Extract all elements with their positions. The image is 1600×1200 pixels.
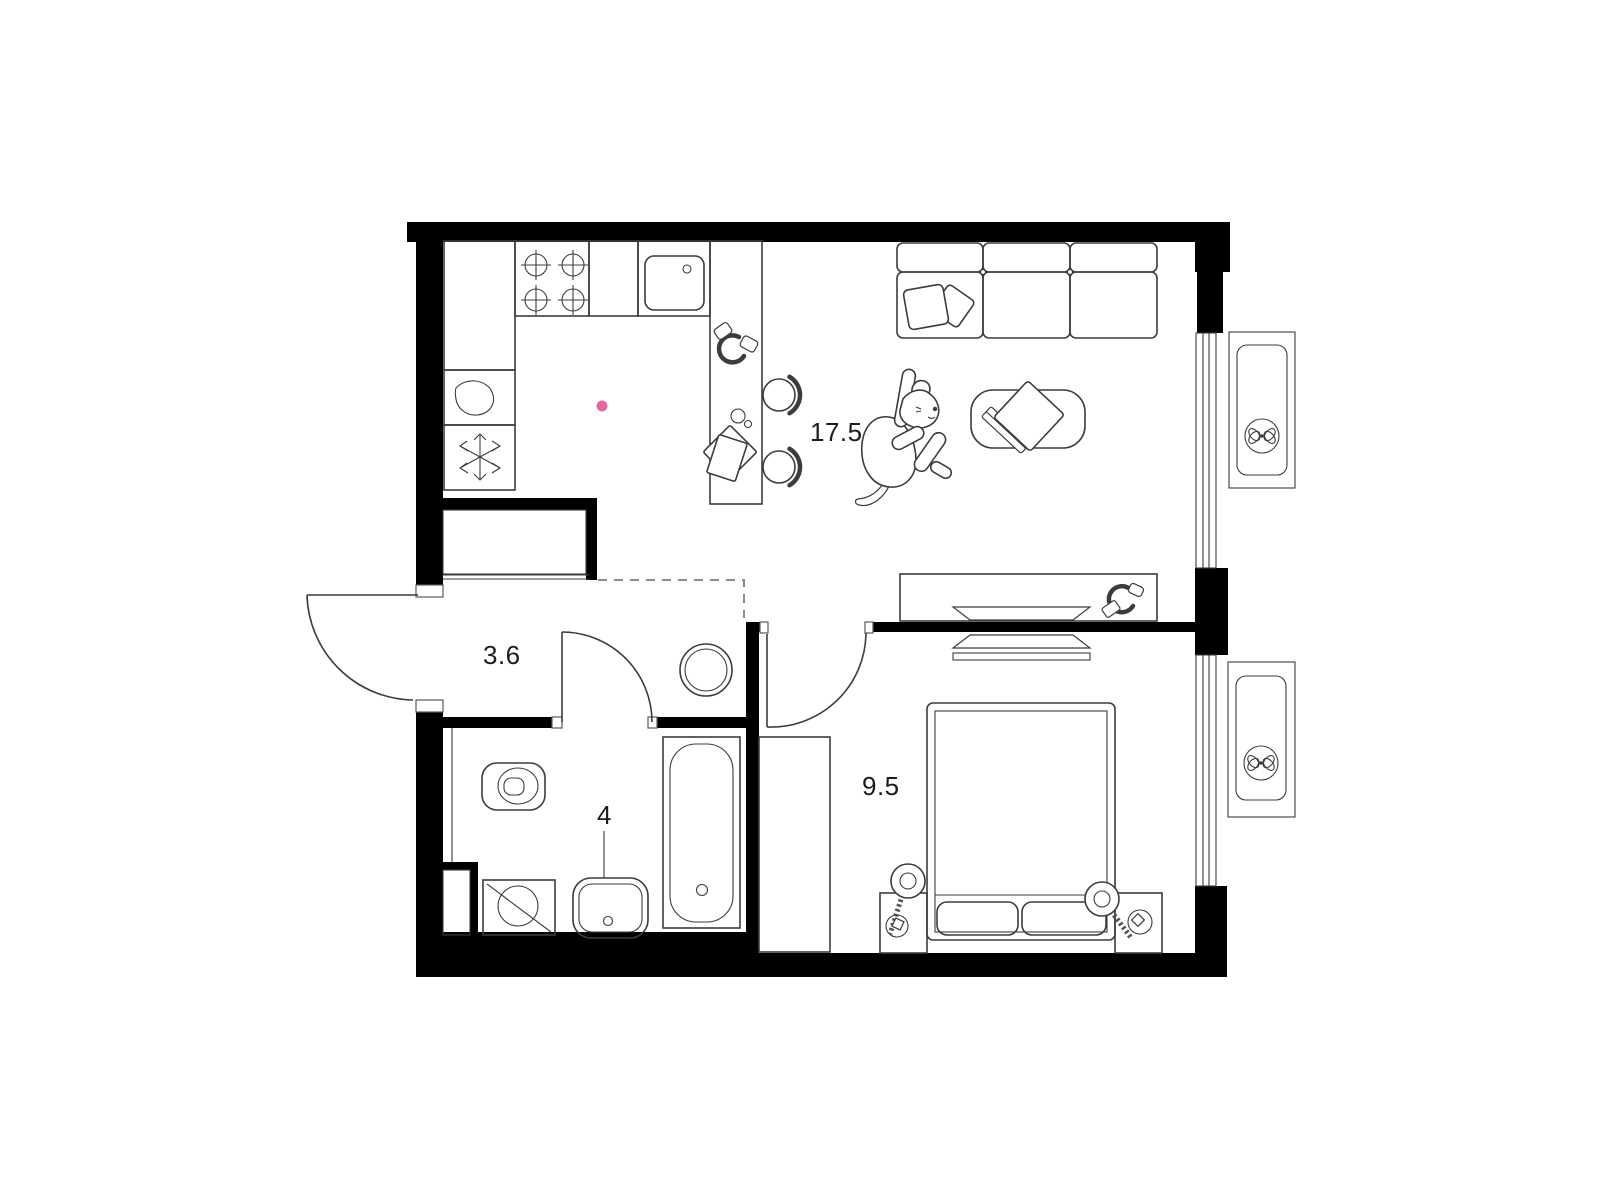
tv-icon	[953, 607, 1090, 620]
kitchen-group	[444, 241, 800, 504]
cutting-board-icon	[703, 425, 757, 482]
ac-vent-unit	[1228, 662, 1295, 817]
cup-icon	[731, 409, 752, 428]
floor-plan-svg: 17.5 3.6 4 9.5	[0, 0, 1600, 1200]
snowflake-icon	[460, 434, 500, 480]
wall-left-lower	[416, 712, 443, 977]
toilet-icon	[482, 763, 545, 810]
wall-shaft-right	[470, 870, 478, 935]
entry-door-swing-icon	[307, 595, 418, 700]
ac-vent-unit	[1229, 332, 1295, 488]
kitchen-sink-icon	[645, 256, 704, 310]
bathroom-door-swing-icon	[562, 632, 652, 722]
wall-hall-bedroom-divider	[746, 622, 759, 953]
window-icon	[1196, 333, 1216, 568]
utility-shaft	[443, 870, 470, 935]
bedroom-door-jamb-left	[760, 622, 768, 633]
tv-icon-bedroom	[953, 635, 1090, 660]
sink-counter-section	[638, 241, 710, 316]
wall-shaft-top	[442, 862, 478, 870]
living-room-group	[855, 243, 1157, 621]
counter-section	[589, 241, 638, 316]
room-label-hallway: 3.6	[483, 640, 521, 670]
room-label-bedroom: 9.5	[862, 771, 900, 801]
wall-living-bedroom-divider	[873, 622, 1197, 632]
wall-kitchen-closet-top	[420, 498, 597, 510]
pillow-icon	[937, 902, 1018, 935]
tv-shelf	[953, 653, 1090, 660]
bath-door-jamb-left	[552, 717, 562, 728]
smoke-detector-dot	[597, 401, 608, 412]
wall-top-right-step	[1195, 242, 1230, 272]
table-lamp-icon	[886, 864, 925, 937]
dog-illustration	[855, 368, 953, 505]
headphones-icon	[1101, 583, 1144, 619]
hall-closet	[443, 510, 586, 574]
headphones-icon	[713, 321, 759, 362]
pouf-icon	[680, 644, 732, 696]
bedroom-group	[759, 635, 1162, 953]
coffee-table-icon	[971, 381, 1085, 454]
water-drop-icon	[455, 381, 493, 415]
wall-left-upper	[416, 222, 443, 585]
books-icon	[981, 381, 1064, 454]
wardrobe-icon	[759, 737, 830, 952]
bar-stool-icon	[763, 449, 800, 485]
wall-bathroom-top-left	[443, 717, 552, 728]
wall-right-pier-1	[1197, 272, 1223, 333]
bathroom-sink-icon	[573, 831, 648, 938]
table-lamp-icon	[1085, 882, 1152, 939]
bedroom-door-swing-icon	[767, 633, 866, 727]
ventilation-fan-icon	[1245, 419, 1279, 453]
sofa-icon	[897, 243, 1157, 338]
bathtub-icon	[663, 737, 740, 928]
wall-right-pier-2	[1195, 568, 1228, 655]
window-icon	[1196, 655, 1216, 886]
bar-stool-icon	[763, 377, 800, 413]
kitchen-cabinet-sink-unit	[444, 370, 515, 425]
entry-door-jamb-bottom	[416, 700, 443, 712]
kitchen-corner-cabinet	[444, 241, 515, 370]
open-boundary-dashed-line	[598, 580, 744, 618]
ventilation-fan-icon	[1244, 746, 1278, 780]
bedroom-door-jamb-right	[865, 622, 873, 633]
washing-machine-icon	[483, 880, 555, 935]
wall-bathroom-top-right	[657, 717, 746, 728]
bathroom-group	[443, 728, 740, 938]
room-label-living-kitchen: 17.5	[810, 417, 863, 447]
stove-burners-icon	[521, 250, 588, 315]
wall-bottom	[416, 953, 1227, 977]
room-label-bathroom: 4	[597, 800, 612, 830]
pillow-icon	[903, 284, 949, 330]
dog-nose	[933, 407, 937, 411]
entry-door-jamb-top	[416, 585, 443, 597]
dog-body	[862, 417, 916, 487]
hall-closet-front	[443, 575, 590, 579]
floor-plan: 17.5 3.6 4 9.5	[0, 0, 1600, 1200]
room-labels: 17.5 3.6 4 9.5	[483, 417, 900, 830]
doors	[307, 580, 866, 727]
wall-kitchen-closet-right	[586, 498, 597, 580]
wall-top	[407, 222, 1230, 242]
dog-hind-paw	[929, 460, 954, 481]
tv-console-icon	[900, 574, 1157, 621]
